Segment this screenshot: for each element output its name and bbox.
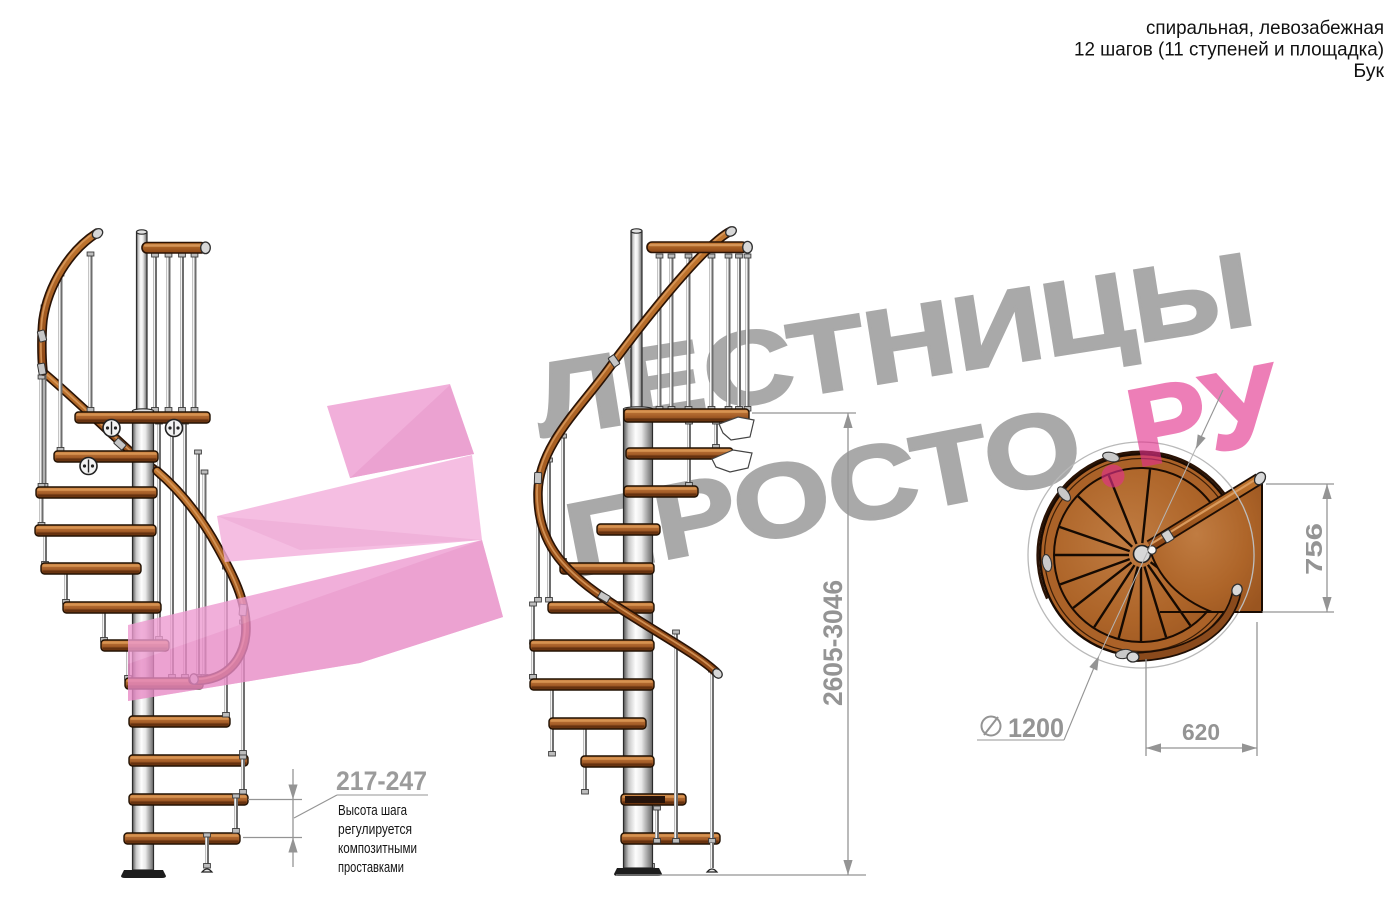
svg-text:217-247: 217-247 <box>336 766 427 796</box>
svg-text:2605-3046: 2605-3046 <box>818 580 848 706</box>
svg-text:проставками: проставками <box>338 860 404 876</box>
svg-text:регулируется: регулируется <box>338 822 412 838</box>
svg-text:756: 756 <box>1301 523 1327 575</box>
svg-text:Бук: Бук <box>1353 60 1384 82</box>
svg-text:12 шагов (11 ступеней и площад: 12 шагов (11 ступеней и площадка) <box>1074 39 1384 61</box>
svg-text:1200: 1200 <box>1008 713 1064 743</box>
svg-text:Высота шага: Высота шага <box>338 803 408 819</box>
svg-text:620: 620 <box>1182 719 1220 745</box>
svg-text:спиральная, левозабежная: спиральная, левозабежная <box>1146 17 1384 39</box>
svg-text:композитными: композитными <box>338 841 417 857</box>
